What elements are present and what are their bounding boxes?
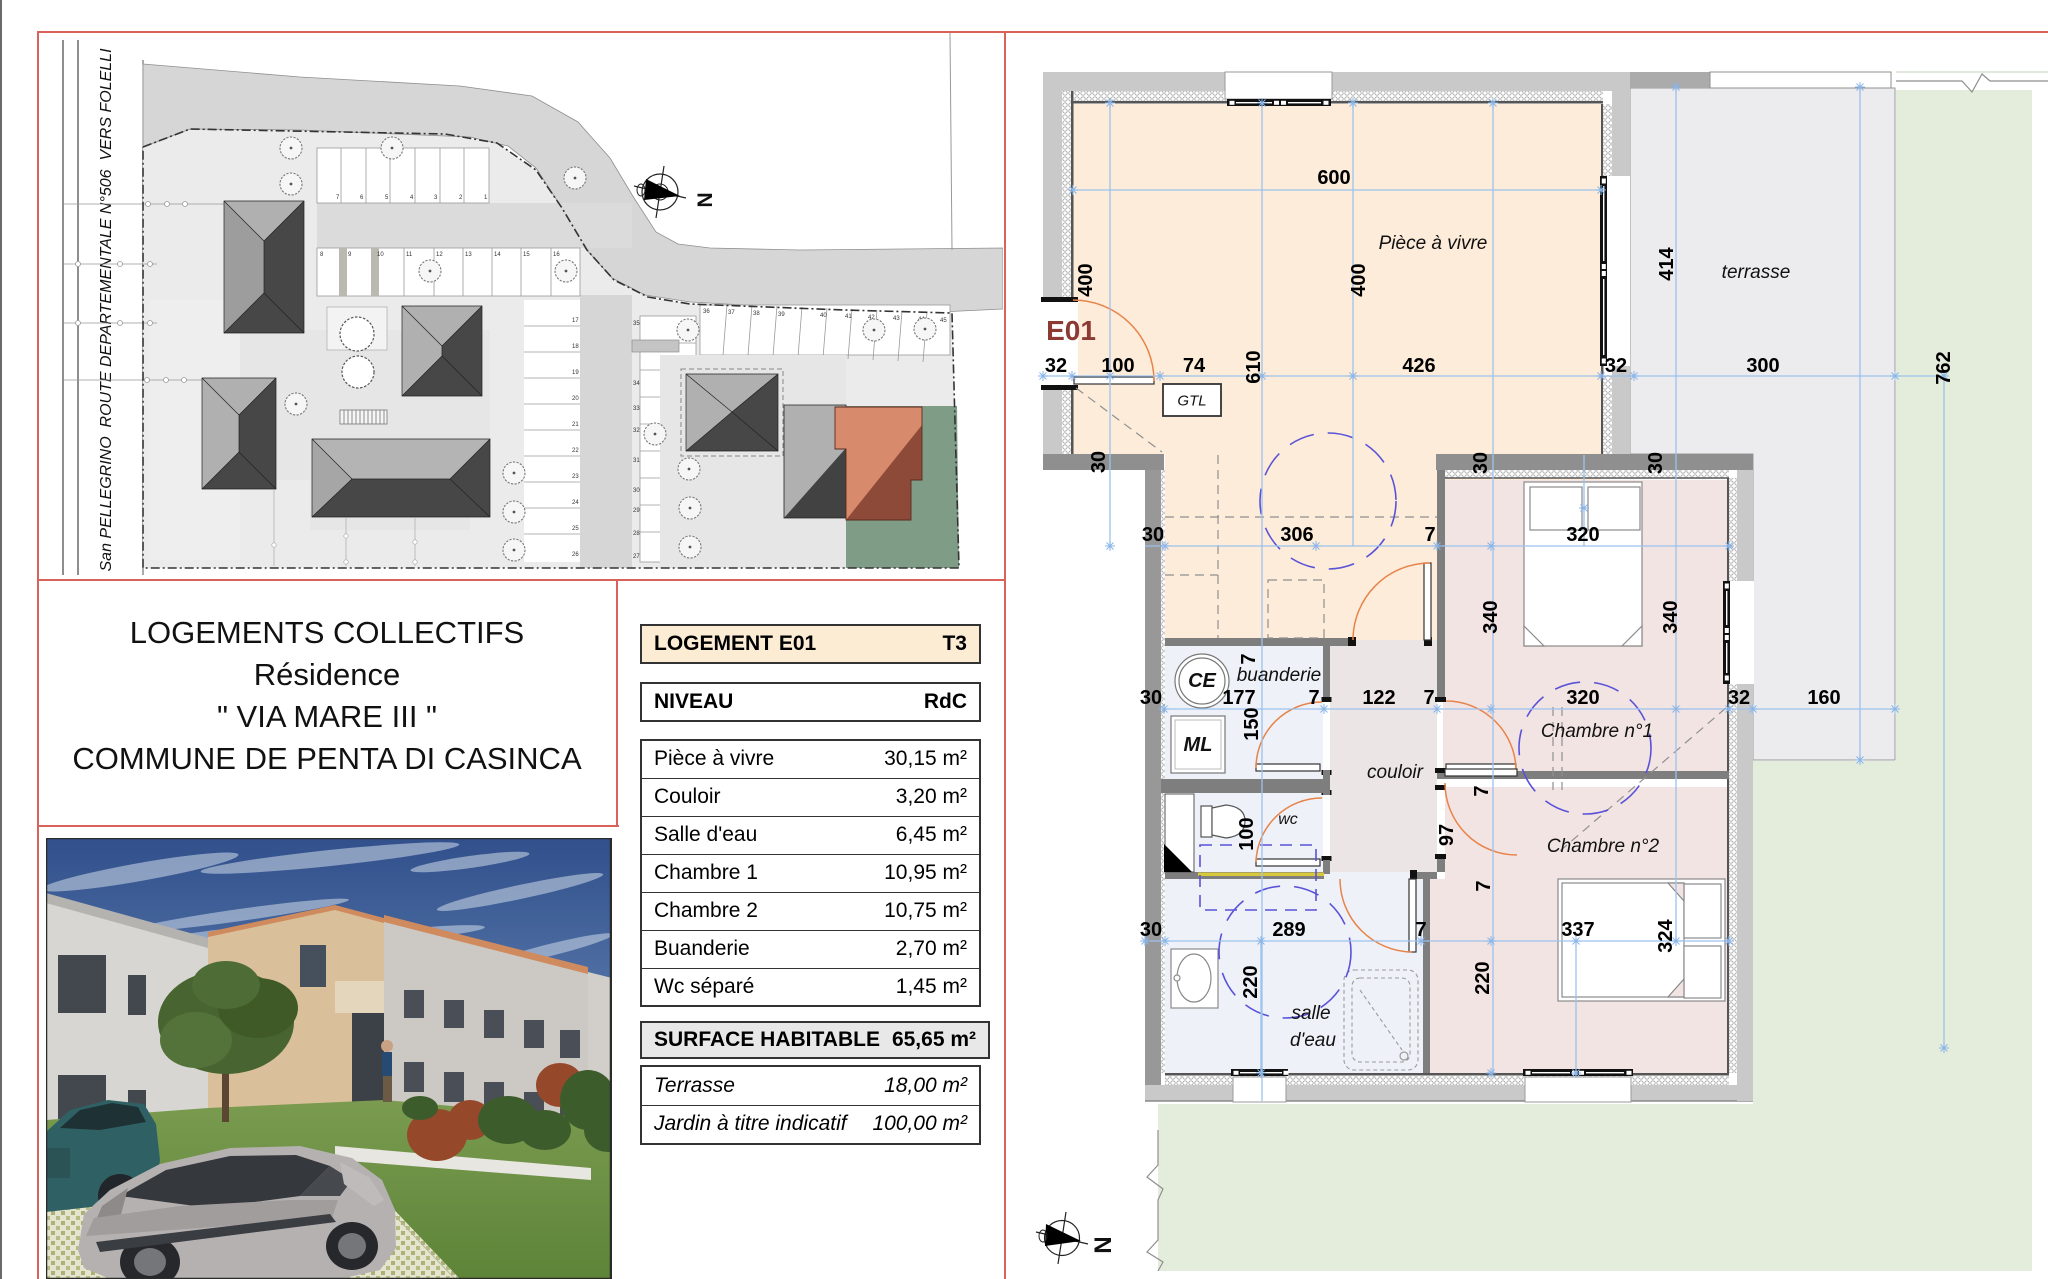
svg-text:45: 45 [940,318,947,324]
svg-text:30: 30 [1140,687,1162,709]
svg-text:220: 220 [1472,961,1494,994]
svg-text:36: 36 [703,309,710,315]
svg-text:Chambre n°2: Chambre n°2 [1547,836,1660,857]
svg-text:610: 610 [1243,350,1265,383]
svg-text:100: 100 [1101,355,1134,377]
svg-text:32: 32 [1045,355,1067,377]
svg-text:7: 7 [1308,687,1319,709]
svg-text:426: 426 [1402,355,1435,377]
svg-text:30: 30 [633,488,640,494]
svg-text:30: 30 [1088,451,1110,473]
svg-text:32: 32 [1728,687,1750,709]
svg-text:Chambre n°1: Chambre n°1 [1541,721,1653,742]
svg-text:7: 7 [1415,919,1426,941]
svg-text:100: 100 [1236,817,1258,850]
svg-text:14: 14 [494,252,501,258]
svg-text:29: 29 [633,508,640,514]
svg-text:160: 160 [1807,687,1840,709]
svg-text:15: 15 [523,252,530,258]
svg-text:32: 32 [1605,355,1627,377]
svg-text:d'eau: d'eau [1290,1030,1336,1051]
svg-text:39: 39 [778,312,785,318]
svg-text:177: 177 [1222,687,1255,709]
svg-text:17: 17 [572,318,579,324]
svg-text:22: 22 [572,448,579,454]
svg-text:400: 400 [1075,263,1097,296]
svg-text:21: 21 [572,422,579,428]
svg-text:340: 340 [1660,600,1682,633]
svg-text:31: 31 [633,458,640,464]
svg-text:74: 74 [1183,355,1206,377]
svg-text:N: N [693,192,716,207]
svg-text:13: 13 [465,252,472,258]
svg-text:10: 10 [377,252,384,258]
svg-text:40: 40 [820,313,827,319]
svg-text:7: 7 [1473,880,1495,891]
svg-text:CE: CE [1188,670,1216,692]
svg-text:11: 11 [406,252,413,258]
svg-text:30: 30 [1470,452,1492,474]
svg-text:289: 289 [1272,919,1305,941]
svg-text:26: 26 [572,552,579,558]
svg-text:41: 41 [845,314,852,320]
svg-text:43: 43 [893,316,900,322]
svg-text:337: 337 [1561,919,1594,941]
svg-text:20: 20 [572,396,579,402]
svg-text:GTL: GTL [1177,393,1206,410]
svg-text:400: 400 [1348,263,1370,296]
svg-text:ML: ML [1184,734,1213,756]
svg-text:97: 97 [1436,824,1458,846]
svg-text:220: 220 [1240,965,1262,998]
svg-text:buanderie: buanderie [1237,665,1322,686]
svg-text:30: 30 [1645,452,1667,474]
svg-text:terrasse: terrasse [1722,262,1791,283]
svg-text:324: 324 [1655,918,1677,952]
svg-text:340: 340 [1480,600,1502,633]
svg-text:32: 32 [633,428,640,434]
svg-text:Pièce à vivre: Pièce à vivre [1379,233,1488,254]
svg-text:23: 23 [572,474,579,480]
svg-text:couloir: couloir [1367,762,1424,783]
svg-text:320: 320 [1566,524,1599,546]
svg-text:N: N [1089,1236,1116,1253]
svg-text:34: 34 [633,381,640,387]
svg-text:30: 30 [1142,524,1164,546]
svg-text:wc: wc [1278,811,1298,828]
svg-text:414: 414 [1656,246,1678,280]
svg-text:37: 37 [728,310,735,316]
svg-text:7: 7 [1238,653,1260,664]
svg-text:27: 27 [633,554,640,560]
svg-text:320: 320 [1566,687,1599,709]
svg-text:16: 16 [553,252,560,258]
svg-text:salle: salle [1291,1003,1330,1024]
svg-text:600: 600 [1317,167,1350,189]
svg-text:7: 7 [1423,687,1434,709]
svg-text:33: 33 [633,406,640,412]
svg-text:762: 762 [1933,351,1955,384]
svg-text:30: 30 [1140,919,1162,941]
svg-text:122: 122 [1362,687,1395,709]
svg-text:306: 306 [1280,524,1313,546]
svg-text:300: 300 [1746,355,1779,377]
svg-text:25: 25 [572,526,579,532]
svg-text:7: 7 [1424,524,1435,546]
svg-text:28: 28 [633,531,640,537]
svg-text:19: 19 [572,370,579,376]
svg-text:18: 18 [572,344,579,350]
svg-text:150: 150 [1241,707,1263,740]
svg-text:E01: E01 [1046,315,1096,346]
svg-text:24: 24 [572,500,579,506]
svg-text:San PELLEGRINO ROUTE DEPARTEM: San PELLEGRINO ROUTE DEPARTEMENTALE N°50… [98,48,115,572]
svg-text:7: 7 [1471,785,1493,796]
svg-text:12: 12 [436,252,443,258]
svg-text:38: 38 [753,311,760,317]
svg-text:35: 35 [633,321,640,327]
